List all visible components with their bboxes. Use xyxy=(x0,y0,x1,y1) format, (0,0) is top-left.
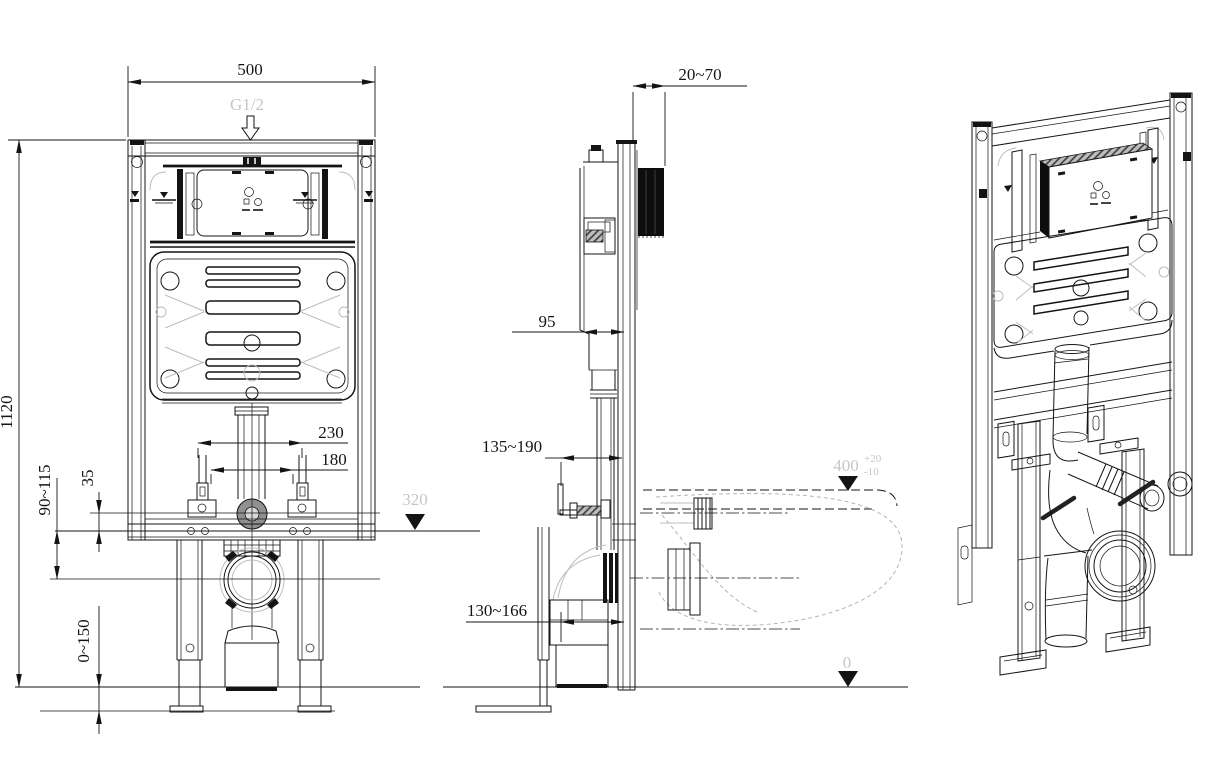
level-0-label: 0 xyxy=(843,653,852,672)
floor-level-marker: 0 xyxy=(443,653,908,687)
pan-ghost-outline xyxy=(640,490,902,629)
level-triangle-icon xyxy=(405,514,425,530)
dim-bolt-inner-label: 180 xyxy=(321,450,347,469)
cistern-body xyxy=(150,252,355,403)
dim-width-label: 500 xyxy=(237,60,263,79)
level-400-label: 400 xyxy=(833,456,859,475)
dim-tank-depth-label: 95 xyxy=(539,312,556,331)
dim-inlet-range-label: 135~190 xyxy=(482,437,542,456)
inlet-thread-callout: G1/2 xyxy=(230,95,264,140)
dim-wall-distance: 20~70 xyxy=(633,65,747,166)
dim-height: 1120 xyxy=(0,140,126,687)
brand-icon xyxy=(242,188,263,212)
down-arrow-icon xyxy=(242,116,259,140)
drawing-svg: 500 G1/2 1120 230 180 35 90~115 xyxy=(0,0,1224,759)
perspective-view xyxy=(958,93,1192,675)
dim-outlet-range-label: 130~166 xyxy=(467,601,527,620)
level-400-minus-label: -10 xyxy=(864,466,879,478)
side-view: 20~70 95 135~190 xyxy=(443,65,908,712)
tank-side xyxy=(580,145,618,550)
dim-height-label: 1120 xyxy=(0,395,16,428)
level-marker-320: 320 xyxy=(402,490,428,530)
dim-leg-adjust-label: 0~150 xyxy=(74,619,93,662)
dim-offset-35-label: 35 xyxy=(78,470,97,487)
persp-tank xyxy=(993,210,1172,358)
dim-outlet-height: 90~115 xyxy=(35,464,57,579)
dim-outlet-height-label: 90~115 xyxy=(35,464,54,515)
outlet-bend-side xyxy=(550,545,618,688)
dim-outlet-range: 130~166 xyxy=(466,601,624,642)
flush-plate-panel xyxy=(197,170,308,236)
dim-offset-35: 35 xyxy=(78,470,99,553)
inlet-thread-label: G1/2 xyxy=(230,95,264,114)
side-rail xyxy=(612,140,637,690)
flush-plate-side xyxy=(637,150,664,310)
level-marker-400: 400 +20 -10 xyxy=(833,453,881,491)
level-320-label: 320 xyxy=(402,490,428,509)
dim-tank-depth: 95 xyxy=(512,312,624,332)
dim-wall-distance-label: 20~70 xyxy=(678,65,721,84)
persp-access-panel xyxy=(1040,143,1152,238)
water-level-icon xyxy=(152,192,317,203)
access-panel-assembly xyxy=(150,157,355,247)
drawing-sheet: 500 G1/2 1120 230 180 35 90~115 xyxy=(0,0,1224,759)
dim-leg-adjust: 0~150 xyxy=(74,606,99,734)
persp-flush-pipe xyxy=(1053,345,1089,443)
dim-bolt-inner: 180 xyxy=(211,450,348,484)
outlet-stub xyxy=(630,543,800,615)
side-bracket xyxy=(558,484,610,518)
front-view: 500 G1/2 1120 230 180 35 90~115 xyxy=(0,60,480,734)
level-triangle-icon xyxy=(838,476,858,491)
level-400-plus-label: +20 xyxy=(864,453,882,465)
dim-bolt-outer-label: 230 xyxy=(318,423,344,442)
level-triangle-icon xyxy=(838,671,858,687)
